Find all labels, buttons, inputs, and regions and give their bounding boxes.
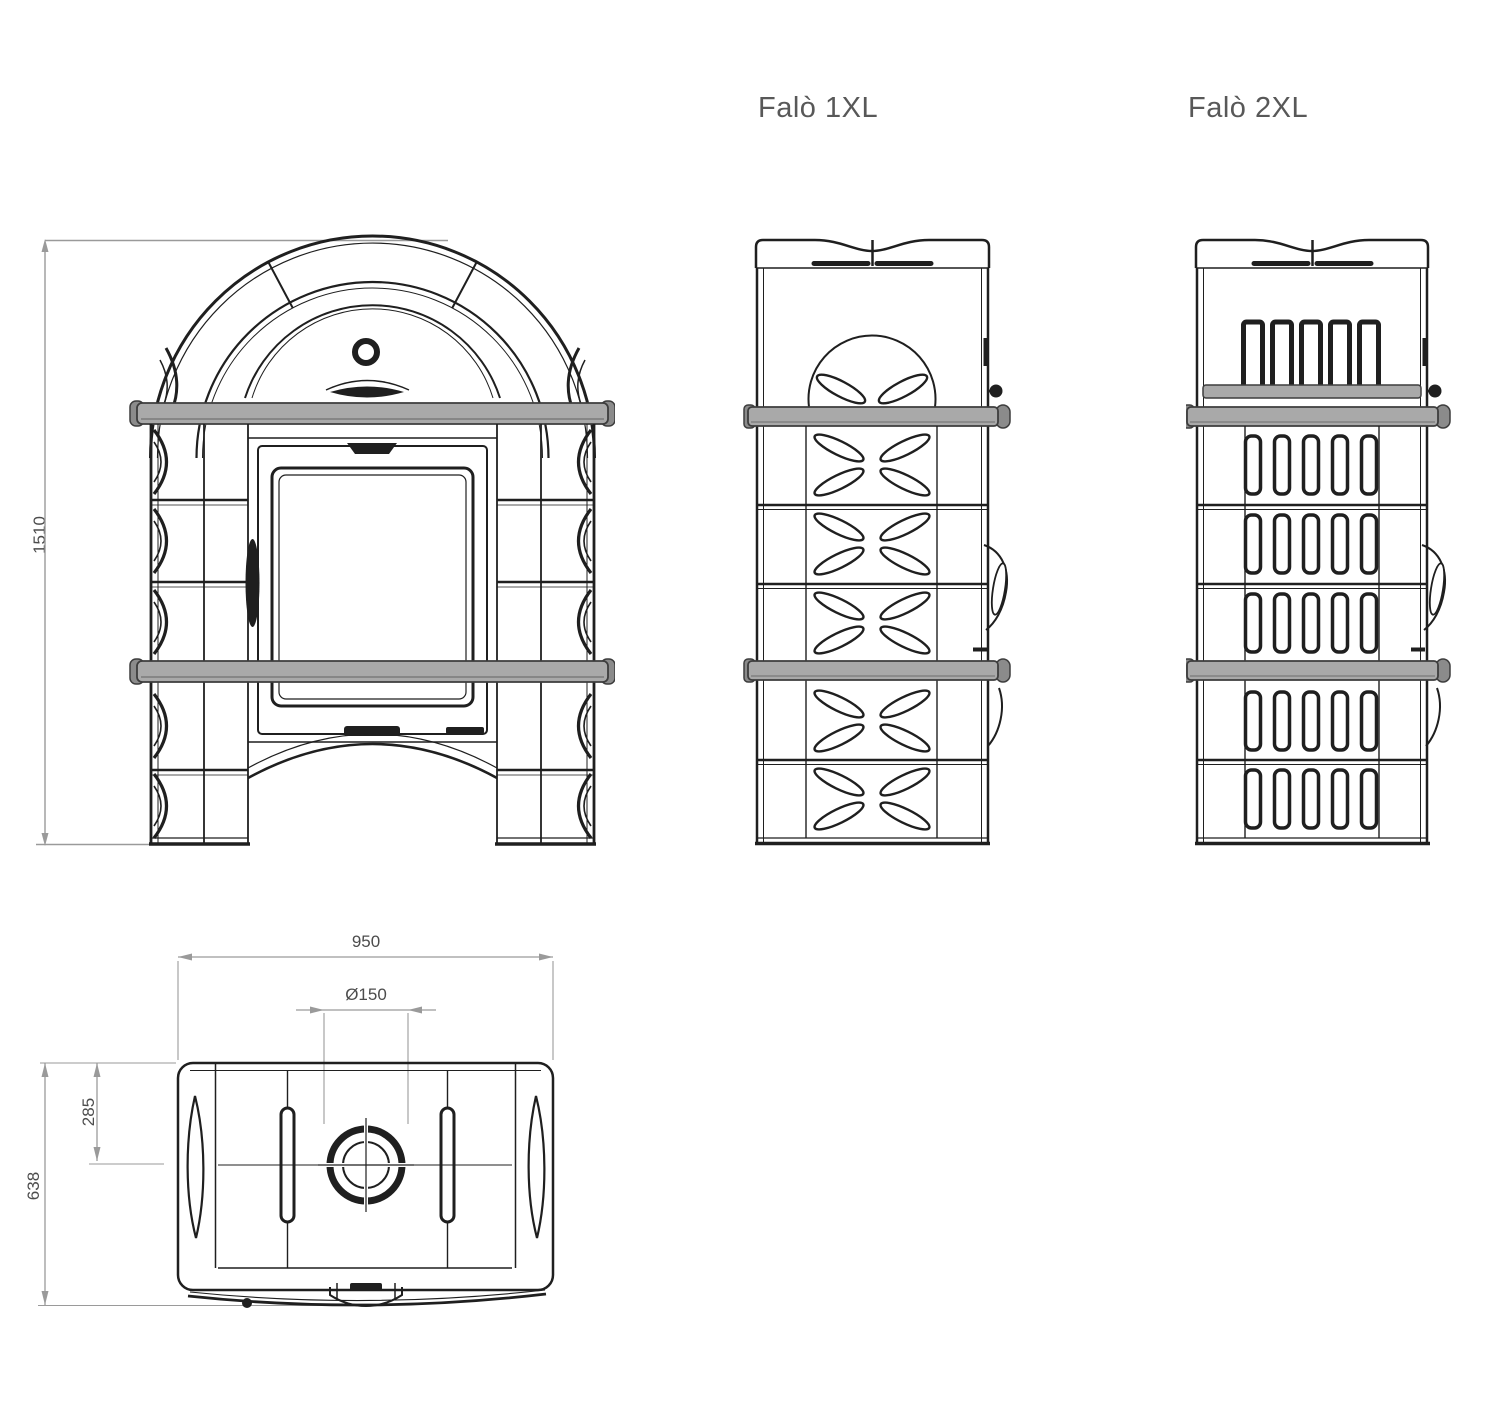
side-tile-lens-right (529, 1096, 545, 1238)
slot-tiles (1246, 436, 1377, 828)
body-sides (757, 268, 988, 843)
leaf-tiles (812, 430, 933, 834)
fire-door (246, 438, 498, 742)
arch-inner-panel (245, 305, 500, 398)
offset-dimension-lines (40, 1063, 176, 1164)
lower-shelf-band (1186, 659, 1450, 682)
width-dimension-lines (178, 954, 553, 1061)
model-label-1xl: Falò 1XL (758, 92, 878, 125)
base (755, 838, 990, 844)
side-view-1xl (738, 225, 1020, 857)
front-edge (188, 1283, 546, 1308)
model-label-2xl: Falò 2XL (1188, 92, 1308, 125)
tile-grid (757, 426, 988, 838)
flue-outlet (318, 1118, 414, 1212)
side-door-handle (973, 545, 1009, 746)
top-cap (1196, 240, 1428, 268)
tile-crescents-right (579, 430, 592, 838)
tile-crescents-left (154, 430, 167, 838)
door-handle (246, 539, 260, 627)
side-door-handle (1411, 545, 1447, 746)
oven-handle (330, 387, 404, 398)
lower-shelf-band (130, 659, 615, 684)
air-control-knob (1427, 385, 1442, 398)
base-apron (149, 734, 596, 844)
front-view (25, 225, 615, 857)
lower-shelf-band (744, 659, 1010, 682)
top-view (20, 925, 600, 1337)
door-latch (347, 443, 397, 454)
base (1195, 838, 1430, 844)
side-tile-lens-left (188, 1096, 204, 1238)
fan-motif (809, 336, 936, 409)
shelf-band (1186, 405, 1450, 428)
top-cap (756, 240, 989, 268)
height-dimension-lines (36, 239, 448, 846)
side-view-2xl (1186, 225, 1470, 857)
flue-dimension-lines (296, 1007, 436, 1125)
shelf-band (744, 405, 1010, 428)
technical-drawing-sheet: Falò 1XL Falò 2XL 1510 950 Ø150 285 638 (0, 0, 1500, 1427)
front-foot-dot (242, 1298, 252, 1308)
damper-knob (355, 341, 377, 363)
air-control-knob (988, 385, 1003, 398)
side-columns (151, 424, 594, 843)
slat-motif (1203, 322, 1421, 398)
upper-shelf-band (130, 401, 615, 426)
